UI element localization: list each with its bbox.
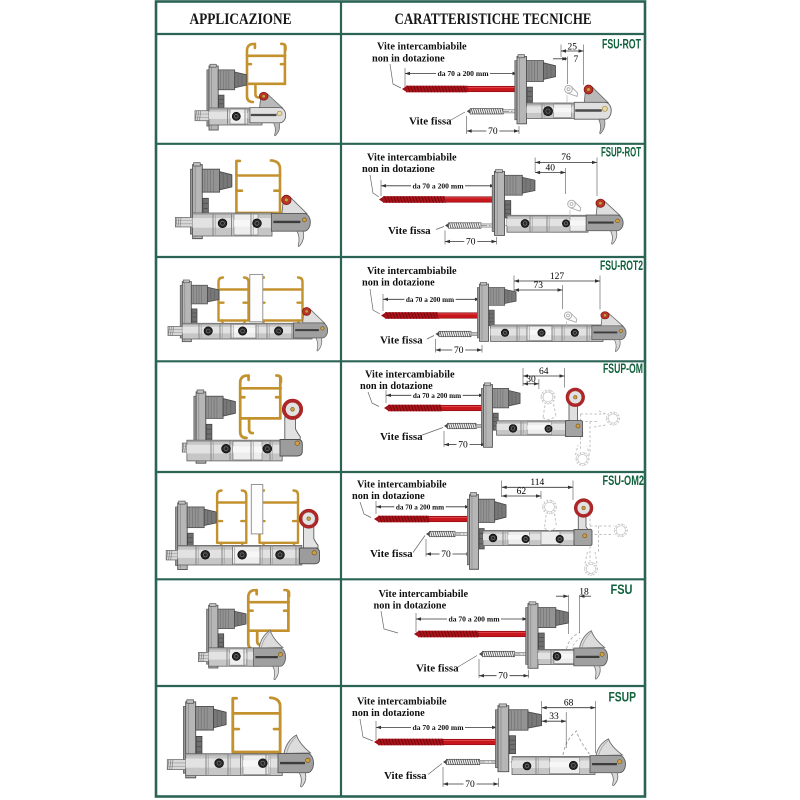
svg-text:FSU-OM2: FSU-OM2 (603, 473, 645, 488)
svg-text:da 70 a 200 mm: da 70 a 200 mm (437, 69, 489, 78)
svg-text:FSUP-OM: FSUP-OM (603, 361, 643, 376)
svg-text:40: 40 (546, 163, 556, 173)
svg-text:64: 64 (539, 367, 549, 377)
svg-text:Vite fissa: Vite fissa (380, 431, 423, 443)
svg-text:da 70 a 200 mm: da 70 a 200 mm (413, 392, 461, 400)
svg-text:30: 30 (526, 375, 536, 385)
svg-text:Vite intercambiabile: Vite intercambiabile (367, 153, 457, 164)
svg-text:Vite fissa: Vite fissa (384, 770, 427, 782)
svg-text:7: 7 (574, 55, 579, 65)
svg-text:CARATTERISTICHE TECNICHE: CARATTERISTICHE TECNICHE (395, 11, 592, 28)
svg-text:non in dotazione: non in dotazione (352, 491, 425, 502)
svg-text:FSUP-ROT: FSUP-ROT (601, 145, 641, 160)
svg-text:Vite intercambiabile: Vite intercambiabile (379, 589, 469, 600)
svg-text:FSU-ROT: FSU-ROT (602, 37, 641, 52)
svg-text:Vite intercambiabile: Vite intercambiabile (357, 697, 447, 708)
svg-text:70: 70 (465, 780, 475, 790)
svg-text:Vite intercambiabile: Vite intercambiabile (377, 42, 467, 53)
svg-text:62: 62 (517, 487, 527, 497)
svg-text:FSU-ROT2: FSU-ROT2 (600, 258, 643, 273)
svg-text:70: 70 (441, 550, 451, 560)
svg-text:Vite fissa: Vite fissa (370, 548, 413, 560)
svg-text:18: 18 (579, 587, 589, 597)
svg-text:non in dotazione: non in dotazione (372, 54, 445, 65)
svg-text:non in dotazione: non in dotazione (362, 164, 435, 175)
svg-text:FSU: FSU (611, 582, 633, 597)
svg-text:da 70 a 200 mm: da 70 a 200 mm (412, 182, 464, 191)
svg-text:APPLICAZIONE: APPLICAZIONE (190, 11, 292, 28)
svg-text:da 70 a 200 mm: da 70 a 200 mm (448, 615, 500, 624)
svg-text:non in dotazione: non in dotazione (360, 381, 433, 392)
svg-text:33: 33 (549, 712, 559, 722)
svg-text:70: 70 (458, 440, 468, 450)
svg-text:70: 70 (466, 237, 476, 247)
svg-text:non in dotazione: non in dotazione (362, 278, 435, 289)
svg-text:Vite fissa: Vite fissa (380, 335, 423, 347)
svg-text:68: 68 (564, 699, 574, 709)
svg-text:Vite fissa: Vite fissa (388, 225, 431, 237)
svg-text:70: 70 (488, 127, 498, 137)
svg-text:Vite intercambiabile: Vite intercambiabile (357, 480, 447, 491)
svg-text:70: 70 (454, 346, 464, 356)
svg-text:25: 25 (568, 43, 578, 53)
svg-text:73: 73 (534, 281, 544, 291)
svg-text:76: 76 (561, 153, 571, 163)
svg-text:Vite fissa: Vite fissa (416, 663, 459, 675)
svg-text:non in dotazione: non in dotazione (352, 708, 425, 719)
svg-text:da 70 a 200 mm: da 70 a 200 mm (406, 296, 454, 304)
svg-text:Vite fissa: Vite fissa (409, 116, 452, 128)
svg-text:127: 127 (550, 272, 565, 282)
svg-text:da 70 a 200 mm: da 70 a 200 mm (412, 723, 464, 732)
svg-text:non in dotazione: non in dotazione (374, 601, 447, 612)
svg-text:Vite intercambiabile: Vite intercambiabile (367, 266, 457, 277)
svg-text:114: 114 (530, 478, 544, 488)
svg-text:Vite intercambiabile: Vite intercambiabile (365, 370, 455, 381)
svg-text:da 70 a 200 mm: da 70 a 200 mm (396, 504, 444, 512)
svg-text:FSUP: FSUP (609, 690, 637, 705)
svg-text:70: 70 (498, 672, 508, 682)
